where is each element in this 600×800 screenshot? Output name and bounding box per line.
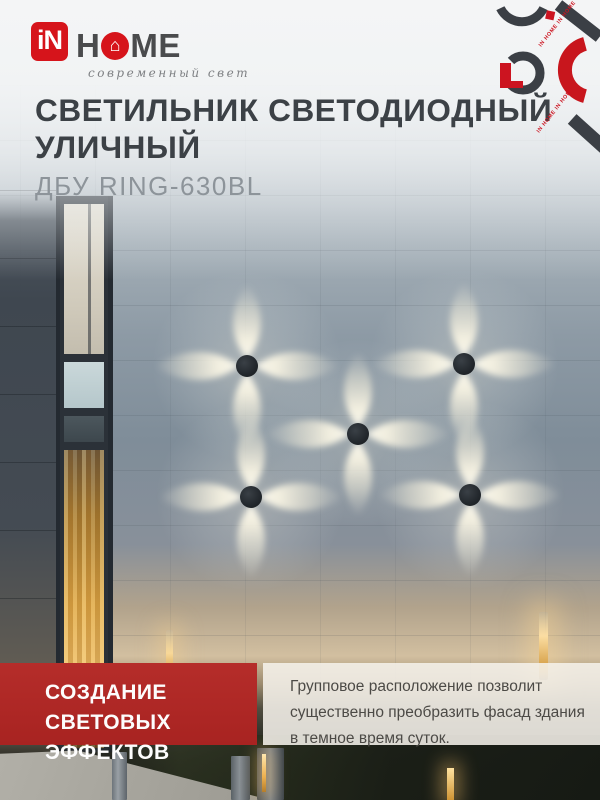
- description-line: Групповое расположение позволит: [290, 674, 600, 700]
- decor-red-corner: [500, 63, 523, 88]
- logo-wordmark: H ⌂ ME современный свет: [76, 22, 250, 80]
- logo-letter-h: H: [76, 27, 100, 65]
- feature-banner: СОЗДАНИЕ СВЕТОВЫХ ЭФФЕКТОВ: [0, 663, 257, 745]
- wall-light-bottom-right: [375, 400, 565, 590]
- bollard-light-slit: [447, 768, 454, 800]
- logo-in-badge: iN: [31, 22, 68, 61]
- logo-in-text: iN: [37, 25, 62, 56]
- brand-watermark: IN HOME IN HOME: [536, 86, 576, 134]
- product-poster: СОЗДАНИЕ СВЕТОВЫХ ЭФФЕКТОВ Групповое рас…: [0, 0, 600, 800]
- inhome-logo: iN H ⌂ ME современный свет: [31, 22, 250, 80]
- banner-line2: ЭФФЕКТОВ: [45, 738, 257, 768]
- decor-arc-top: [500, 8, 543, 22]
- house-icon: ⌂: [101, 32, 129, 60]
- logo-tagline: современный свет: [88, 66, 250, 80]
- banner-line1: СОЗДАНИЕ СВЕТОВЫХ: [45, 678, 257, 738]
- decor-stripe: [568, 114, 600, 156]
- bollard-light-slit: [262, 754, 266, 792]
- description-line: существенно преобразить фасад здания: [290, 700, 600, 726]
- description-panel: Групповое расположение позволит существе…: [263, 663, 600, 745]
- logo-letters-me: ME: [130, 27, 181, 65]
- product-model: ДБУ RING-630BL: [35, 171, 575, 202]
- decor-red-square: [545, 10, 555, 20]
- brand-corner-decor: IN HOME IN HOME IN HOME IN HOME: [440, 0, 600, 160]
- wall-light-bottom-left: [156, 402, 346, 592]
- description-line: в темное время суток.: [290, 726, 600, 752]
- bollard-light: [257, 748, 284, 800]
